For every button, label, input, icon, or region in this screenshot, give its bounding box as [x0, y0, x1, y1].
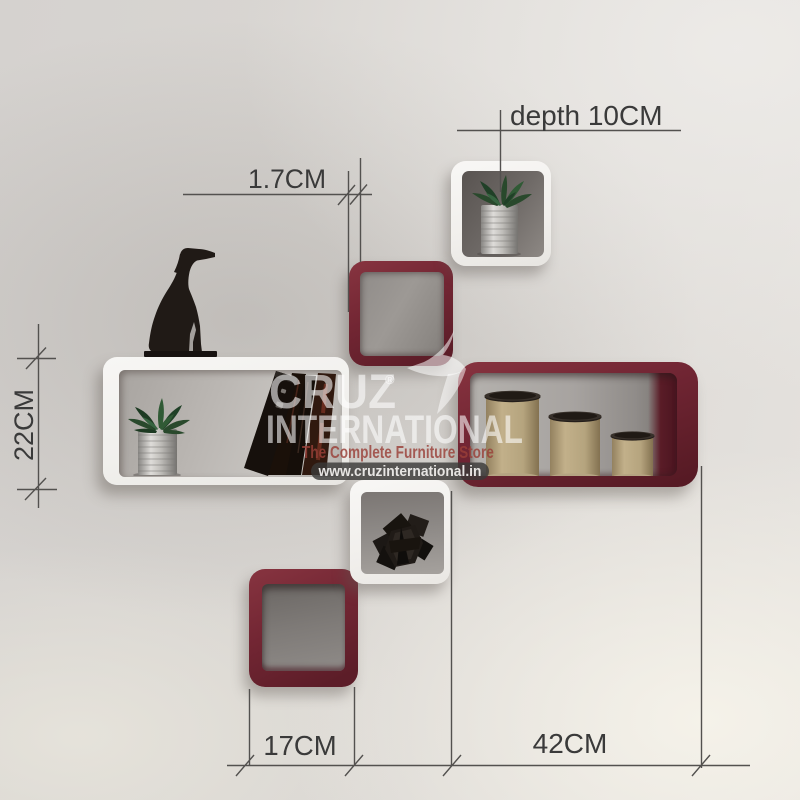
svg-text:www.cruzinternational.in: www.cruzinternational.in [318, 464, 482, 480]
svg-text:®: ® [385, 372, 395, 387]
svg-text:The Complete Furniture Store: The Complete Furniture Store [302, 443, 494, 462]
